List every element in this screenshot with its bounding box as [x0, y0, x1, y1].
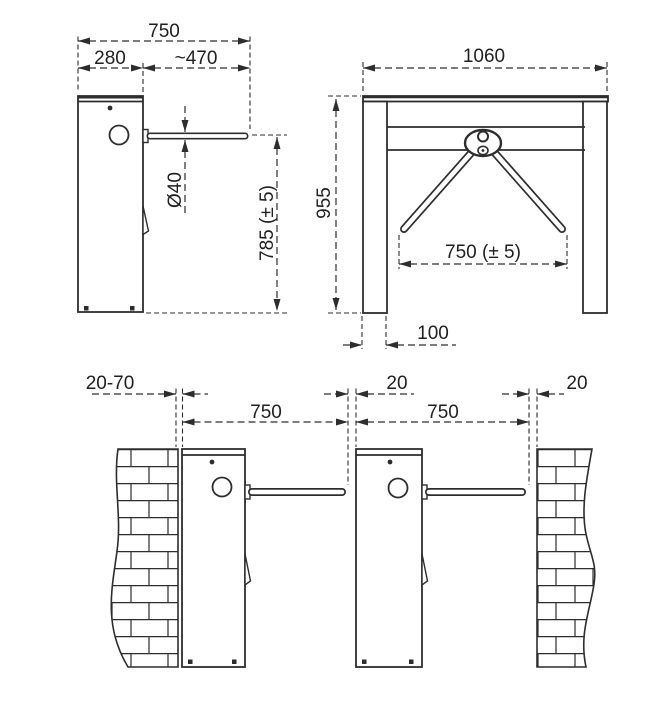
- wall-left: [111, 449, 178, 667]
- dim-front-arm-span-label: 750 (± 5): [445, 242, 521, 263]
- dim-side-arm-height-label: 785 (± 5): [257, 185, 278, 261]
- install-cabinet-right-bracket: [422, 554, 428, 585]
- dim-install-passage-right-label: 750: [427, 402, 459, 423]
- dim-side-total-width-label: 750: [148, 21, 180, 42]
- dim-install-wall-gap-left-label: 20-70: [86, 373, 135, 394]
- front-leg-right: [583, 102, 607, 314]
- install-cabinet-left-reader: [213, 478, 232, 497]
- drawing-canvas: 750 280 ~470 Ø40 785 (± 5): [0, 0, 671, 710]
- dim-front-arm-span: 750 (± 5): [399, 235, 567, 269]
- side-foot-left: [84, 306, 89, 311]
- side-folded-arm-bracket: [143, 206, 149, 235]
- dim-install-wall-gap-left: 20-70: [86, 373, 208, 447]
- side-view: 750 280 ~470 Ø40 785 (± 5): [78, 21, 287, 313]
- install-cabinet-right: [356, 449, 522, 667]
- front-view: 1060 955 750 (± 5) 100: [314, 46, 608, 349]
- dim-front-total-height: 955: [314, 96, 361, 313]
- install-cabinet-right-body: [356, 449, 422, 667]
- install-cabinet-right-led: [388, 460, 393, 465]
- side-reader-circle: [110, 126, 129, 145]
- install-cabinet-left-led: [210, 460, 215, 465]
- dim-install-wall-gap-right-label: 20: [566, 373, 587, 394]
- dim-front-total-width-label: 1060: [463, 46, 505, 67]
- dim-front-total-width: 1060: [363, 46, 607, 92]
- dim-side-arm-diameter-label: Ø40: [165, 172, 186, 208]
- wall-right: [537, 449, 595, 667]
- tripod-arm-left: [404, 152, 472, 229]
- side-foot-right: [130, 306, 135, 311]
- dim-side-cabinet-depth-label: 280: [94, 48, 126, 69]
- dim-install-passage-left: 750: [183, 402, 349, 423]
- side-cabinet-body: [78, 96, 143, 312]
- dim-side-arm-height: 785 (± 5): [146, 135, 287, 313]
- dim-side-arm-length-label: ~470: [175, 48, 218, 69]
- side-led-indicator: [108, 106, 113, 111]
- tripod-hub: [465, 130, 501, 156]
- dim-side-cabinet-depth: 280: [78, 48, 143, 93]
- tripod-arm-right: [494, 152, 562, 229]
- dim-front-total-height-label: 955: [314, 187, 335, 219]
- dim-install-passage-left-label: 750: [250, 402, 282, 423]
- dim-install-passage-right: 750: [356, 402, 529, 423]
- install-cabinet-left: [182, 449, 342, 667]
- turnstile-dimensional-drawing: 750 280 ~470 Ø40 785 (± 5): [0, 0, 671, 710]
- dim-side-arm-diameter: Ø40: [165, 106, 186, 216]
- front-leg-left: [363, 102, 387, 314]
- dim-front-leg-depth: 100: [343, 316, 456, 349]
- install-cabinet-right-reader: [389, 479, 408, 498]
- dim-side-arm-length: ~470: [143, 48, 250, 69]
- install-cabinet-right-foot-b: [409, 660, 414, 665]
- dim-install-center-gap-label: 20: [386, 373, 407, 394]
- installation-view: 20-70 750 20 750 20: [86, 373, 595, 667]
- dim-front-leg-depth-label: 100: [417, 323, 449, 344]
- install-cabinet-left-foot-a: [188, 660, 193, 665]
- install-cabinet-left-bracket: [245, 554, 251, 585]
- install-cabinet-left-foot-b: [232, 660, 237, 665]
- install-cabinet-right-foot-a: [362, 660, 367, 665]
